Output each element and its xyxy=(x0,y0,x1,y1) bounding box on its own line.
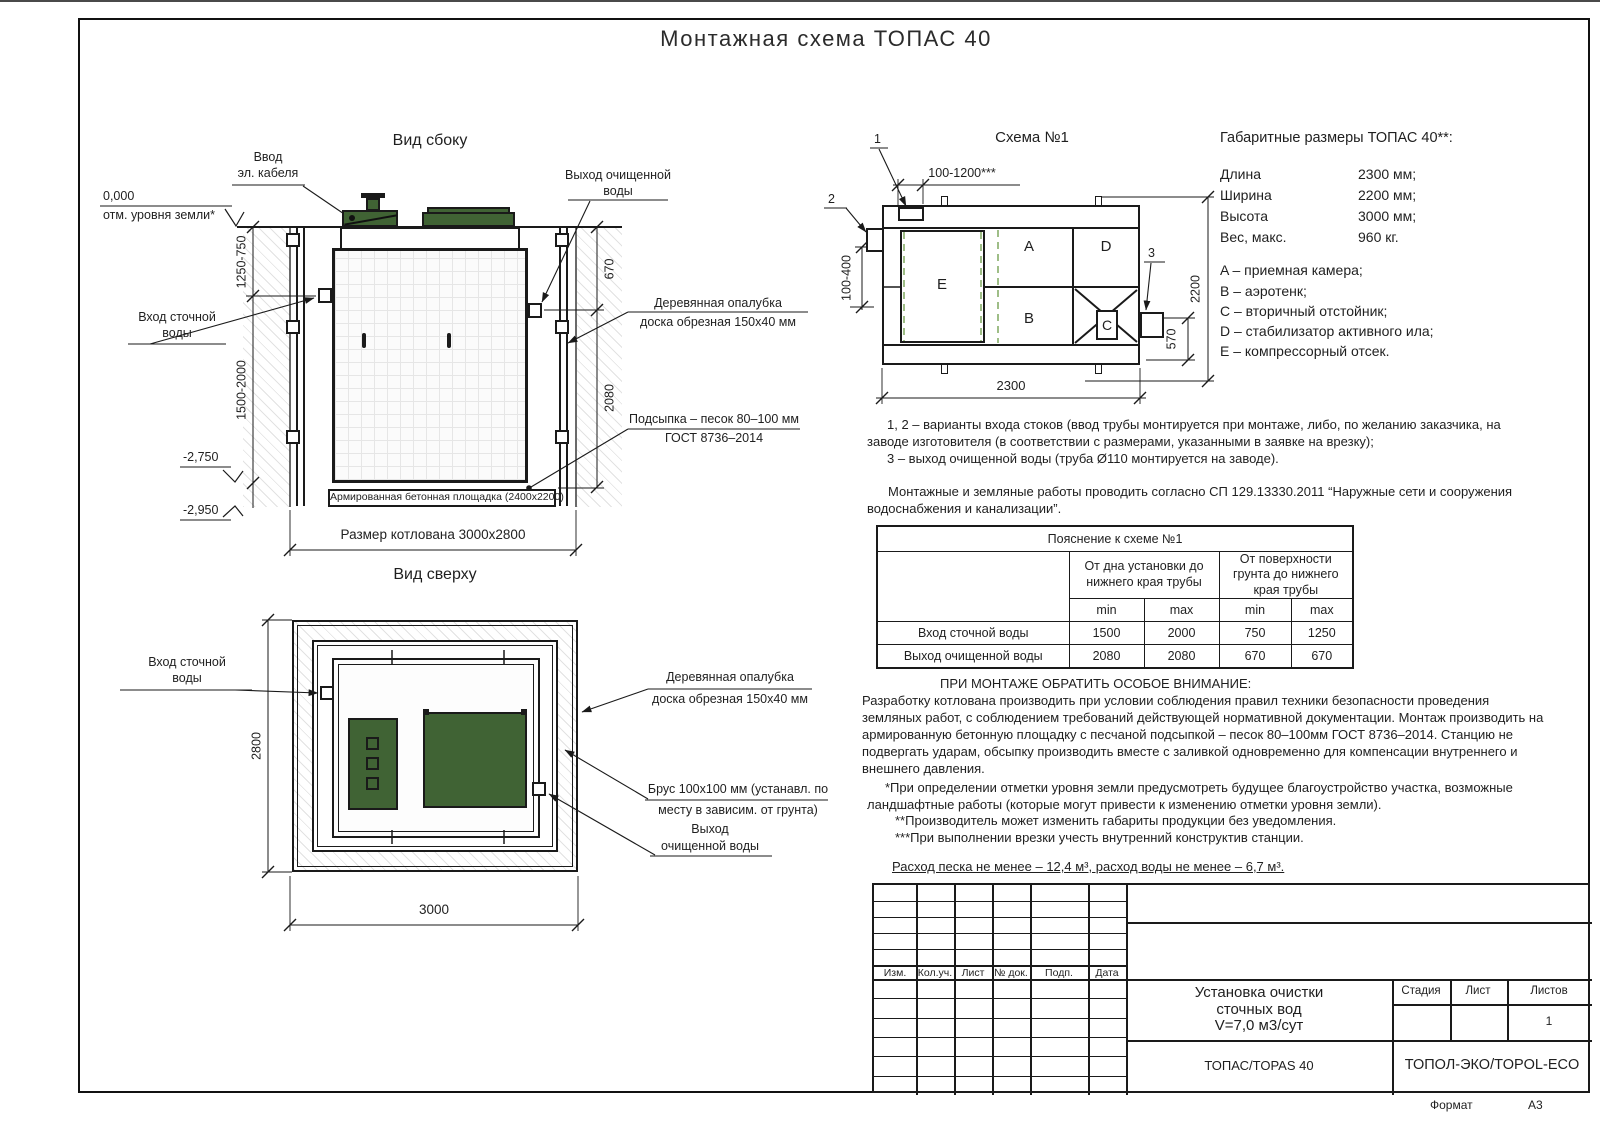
service-lid-right xyxy=(422,212,515,227)
lid-topview xyxy=(423,712,527,808)
dim-row-label: Ширина xyxy=(1220,187,1272,204)
concrete-slab: Армированная бетонная площадка (2400х220… xyxy=(328,489,556,507)
formwork-label: доска обрезная 150х40 мм xyxy=(640,315,796,330)
timber-block xyxy=(286,320,300,334)
consumption-note: Расход песка не менее – 12,4 м³, расход … xyxy=(892,859,1284,874)
stamp-doc-title: V=7,0 м3/сут xyxy=(1215,1017,1303,1035)
tank-neck-side xyxy=(340,227,520,250)
scheme-inlet-1 xyxy=(898,207,924,221)
table-cell: 2000 xyxy=(1144,622,1219,645)
table-cell: 2080 xyxy=(1144,645,1219,668)
table-group-header: От дна установки до нижнего края трубы xyxy=(1069,551,1219,599)
compressor-port xyxy=(366,757,379,770)
dim-row-value: 960 кг. xyxy=(1358,229,1399,246)
footnote-line: *При определении отметки уровня земли пр… xyxy=(885,780,1513,795)
scheme-lug xyxy=(1095,364,1102,374)
dim-2200: 2200 xyxy=(1189,275,1204,303)
legend-item: D – стабилизатор активного ила; xyxy=(1220,323,1434,340)
sewage-inlet-label-top: воды xyxy=(172,671,201,686)
stamp-sheet-label: Лист xyxy=(1466,985,1491,999)
dim-row-value: 2200 мм; xyxy=(1358,187,1416,204)
stamp-col-data: Дата xyxy=(1095,967,1118,979)
tank-bolt xyxy=(447,333,451,348)
lid-hinge-dot xyxy=(349,215,355,221)
compressor-port xyxy=(366,777,379,790)
dim-2800: 2800 xyxy=(250,732,265,760)
legend-item: C – вторичный отстойник; xyxy=(1220,303,1387,320)
table-row: Выход очищенной воды 2080 2080 670 670 xyxy=(877,645,1353,668)
outlet-label-top: очищенной воды xyxy=(661,839,759,854)
scheme-title: Схема №1 xyxy=(995,129,1069,147)
cable-vent xyxy=(366,198,380,211)
scheme-lug xyxy=(941,364,948,374)
drawing-page: Армированная бетонная площадка (2400х220… xyxy=(0,0,1600,1131)
formwork-board-left xyxy=(296,227,305,506)
attention-line: Разработку котлована производить при усл… xyxy=(862,693,1489,708)
legend-item: B – аэротенк; xyxy=(1220,283,1307,300)
dim-570: 570 xyxy=(1165,329,1180,350)
chamber-a-label: A xyxy=(1024,238,1034,256)
stamp-company: ТОПОЛ-ЭКО/TOPOL-ECO xyxy=(1405,1057,1580,1074)
stamp-line xyxy=(1126,1040,1592,1042)
stamp-line xyxy=(874,1037,1126,1038)
level-mark-2750: -2,750 xyxy=(183,450,218,465)
stamp-col-koluch: Кол.уч. xyxy=(918,967,952,979)
timber-block xyxy=(286,233,300,247)
dim-row-label: Вес, макс. xyxy=(1220,229,1287,246)
scheme-outlet-3 xyxy=(1140,312,1164,338)
lid-clamp xyxy=(521,709,527,715)
sand-bedding-label: Подсыпка – песок 80–100 мм xyxy=(629,412,799,427)
format-label: Формат xyxy=(1430,1098,1473,1112)
stamp-line xyxy=(1392,1004,1592,1006)
side-view-title: Вид сбоку xyxy=(393,132,468,151)
stamp-line xyxy=(1126,885,1128,1095)
table-group-header: От поверхности грунта до нижнего края тр… xyxy=(1219,551,1353,599)
beam-label: месту в зависим. от грунта) xyxy=(658,803,818,818)
sewage-inlet-label: воды xyxy=(162,326,191,341)
stamp-sheets-label: Листов xyxy=(1530,985,1567,999)
stamp-line xyxy=(874,1018,1126,1019)
sewage-inlet-label: Вход сточной xyxy=(138,310,216,325)
soil-hatch-left xyxy=(243,228,290,507)
formwork-label-top: Деревянная опалубка xyxy=(666,670,794,685)
dim-row-label: Длина xyxy=(1220,166,1261,183)
clean-water-out-label: Выход очищенной xyxy=(565,168,671,183)
scheme-clarifier-box: C xyxy=(1096,310,1118,340)
table-cell: 1250 xyxy=(1291,622,1353,645)
pit-size-label: Размер котлована 3000х2800 xyxy=(341,527,526,543)
stamp-line xyxy=(1450,979,1452,1040)
table-max-header: max xyxy=(1144,599,1219,622)
formwork-label-top: доска обрезная 150х40 мм xyxy=(652,692,808,707)
stamp-line xyxy=(874,901,1126,902)
table-corner-cell xyxy=(877,551,1069,622)
timber-block xyxy=(555,430,569,444)
table-row-label: Вход сточной воды xyxy=(877,622,1069,645)
inlet-pipe-topview xyxy=(320,686,334,700)
stamp-model: ТОПАС/TOPAS 40 xyxy=(1204,1058,1313,1073)
attention-line: внешнего давления. xyxy=(862,761,985,776)
dim-2080: 2080 xyxy=(603,384,618,412)
footnote-line: **Производитель может изменить габариты … xyxy=(895,813,1336,828)
outlet-pipe-topview xyxy=(532,782,546,796)
table-min-header: min xyxy=(1219,599,1291,622)
cable-entry-label: эл. кабеля xyxy=(238,166,299,181)
page-top-edge xyxy=(0,0,1600,2)
zero-level-mark: 0,000 xyxy=(103,189,134,204)
page-title: Монтажная схема ТОПАС 40 xyxy=(660,26,992,52)
table-cell: 670 xyxy=(1291,645,1353,668)
footnote-line: ***При выполнении врезки учесть внутренн… xyxy=(895,830,1304,845)
timber-block xyxy=(286,430,300,444)
table-min-header: min xyxy=(1069,599,1144,622)
level-mark-2950: -2,950 xyxy=(183,503,218,518)
service-lid-left xyxy=(342,210,398,227)
sand-bedding-label: ГОСТ 8736–2014 xyxy=(665,431,763,446)
scheme-marker-2: 2 xyxy=(828,192,835,207)
stamp-line xyxy=(874,998,1126,999)
stamp-col-izm: Изм. xyxy=(884,967,907,979)
stamp-doc-title: Установка очистки xyxy=(1195,984,1324,1002)
cable-entry-label: Ввод xyxy=(254,150,283,165)
stamp-col-podp: Подп. xyxy=(1045,967,1073,979)
chamber-b-label: B xyxy=(1024,310,1034,328)
dim-row-label: Высота xyxy=(1220,208,1268,225)
footnote-line: ландшафтные работы (которые могут привес… xyxy=(867,797,1381,812)
scheme-lug xyxy=(1095,196,1102,206)
stamp-line xyxy=(1392,979,1394,1095)
formwork-label: Деревянная опалубка xyxy=(654,296,782,311)
stamp-col-list: Лист xyxy=(962,967,985,979)
explanation-table: Пояснение к схеме №1 От дна установки до… xyxy=(876,525,1354,669)
outlet-label-top: Выход xyxy=(691,822,728,837)
formwork-board-right xyxy=(559,227,568,506)
stamp-stage-label: Стадия xyxy=(1401,985,1440,999)
attention-title: ПРИ МОНТАЖЕ ОБРАТИТЬ ОСОБОЕ ВНИМАНИЕ: xyxy=(940,676,1251,691)
stamp-line xyxy=(1126,922,1592,924)
compressor-port xyxy=(366,737,379,750)
lid-clamp xyxy=(423,709,429,715)
outlet-pipe-side xyxy=(528,303,542,318)
note-variants-line: заводе изготовителя (в соответствии с ра… xyxy=(867,434,1374,449)
dim-100-1200: 100-1200*** xyxy=(928,166,995,181)
dim-row-value: 2300 мм; xyxy=(1358,166,1416,183)
ground-level-label: отм. уровня земли* xyxy=(103,208,215,223)
note-variants-line: 1, 2 – варианты входа стоков (ввод трубы… xyxy=(887,417,1501,432)
table-cell: 670 xyxy=(1219,645,1291,668)
format-value: А3 xyxy=(1528,1098,1543,1112)
attention-line: подвергать ударам, обсыпку производить в… xyxy=(862,744,1517,759)
chamber-c-label: C xyxy=(1102,317,1112,333)
overall-dims-header: Габаритные размеры ТОПАС 40**: xyxy=(1220,130,1453,147)
top-view-title: Вид сверху xyxy=(393,566,476,585)
scheme-inlet-2 xyxy=(866,228,884,252)
timber-block xyxy=(555,233,569,247)
stamp-col-ndok: № док. xyxy=(994,967,1028,979)
table-row: Вход сточной воды 1500 2000 750 1250 xyxy=(877,622,1353,645)
dim-100-400: 100-400 xyxy=(840,255,855,301)
stamp-sheets-value: 1 xyxy=(1546,1014,1553,1028)
tank-bolt xyxy=(362,333,366,348)
legend-item: E – компрессорный отсек. xyxy=(1220,343,1390,360)
legend-item: A – приемная камера; xyxy=(1220,262,1363,279)
chamber-e-label: E xyxy=(937,276,947,294)
title-block: Изм. Кол.уч. Лист № док. Подп. Дата Уста… xyxy=(872,883,1590,1093)
stamp-line xyxy=(1507,979,1509,1040)
stamp-line xyxy=(874,1076,1126,1077)
table-max-header: max xyxy=(1291,599,1353,622)
stamp-line xyxy=(874,917,1126,918)
timber-block xyxy=(555,320,569,334)
sewage-inlet-label-top: Вход сточной xyxy=(148,655,226,670)
note-sp-line: Монтажные и земляные работы проводить со… xyxy=(888,484,1512,499)
stamp-line xyxy=(874,949,1126,950)
table-cell: 2080 xyxy=(1069,645,1144,668)
table-cell: 1500 xyxy=(1069,622,1144,645)
attention-line: земляных работ, с соблюдением требований… xyxy=(862,710,1543,725)
compressor-box-topview xyxy=(348,718,398,810)
table-row-label: Выход очищенной воды xyxy=(877,645,1069,668)
attention-line: армированную бетонную площадку с песчано… xyxy=(862,727,1513,742)
stamp-line xyxy=(874,933,1126,934)
scheme-marker-1: 1 xyxy=(874,132,881,147)
dim-1500-2000: 1500-2000 xyxy=(235,360,250,420)
stamp-line xyxy=(874,1056,1126,1057)
note-sp-line: водоснабжения и канализации”. xyxy=(867,501,1061,516)
dim-3000: 3000 xyxy=(419,902,449,918)
inlet-pipe-side xyxy=(318,288,332,303)
clean-water-out-label: воды xyxy=(603,184,632,199)
table-cell: 750 xyxy=(1219,622,1291,645)
dim-1250-750: 1250-750 xyxy=(235,236,250,289)
chamber-d-label: D xyxy=(1101,238,1112,256)
cable-vent-cap xyxy=(361,193,385,198)
dim-670: 670 xyxy=(603,259,618,280)
tank-body-side xyxy=(332,248,528,483)
scheme-marker-3: 3 xyxy=(1148,246,1155,261)
beam-label: Брус 100х100 мм (устанавл. по xyxy=(648,782,828,797)
table-title: Пояснение к схеме №1 xyxy=(877,526,1353,551)
note-variants-line: 3 – выход очищенной воды (труба Ø110 мон… xyxy=(887,451,1279,466)
scheme-lug xyxy=(941,196,948,206)
dim-row-value: 3000 мм; xyxy=(1358,208,1416,225)
dim-2300: 2300 xyxy=(997,378,1026,393)
slab-label: Армированная бетонная площадка (2400х220… xyxy=(330,491,554,504)
